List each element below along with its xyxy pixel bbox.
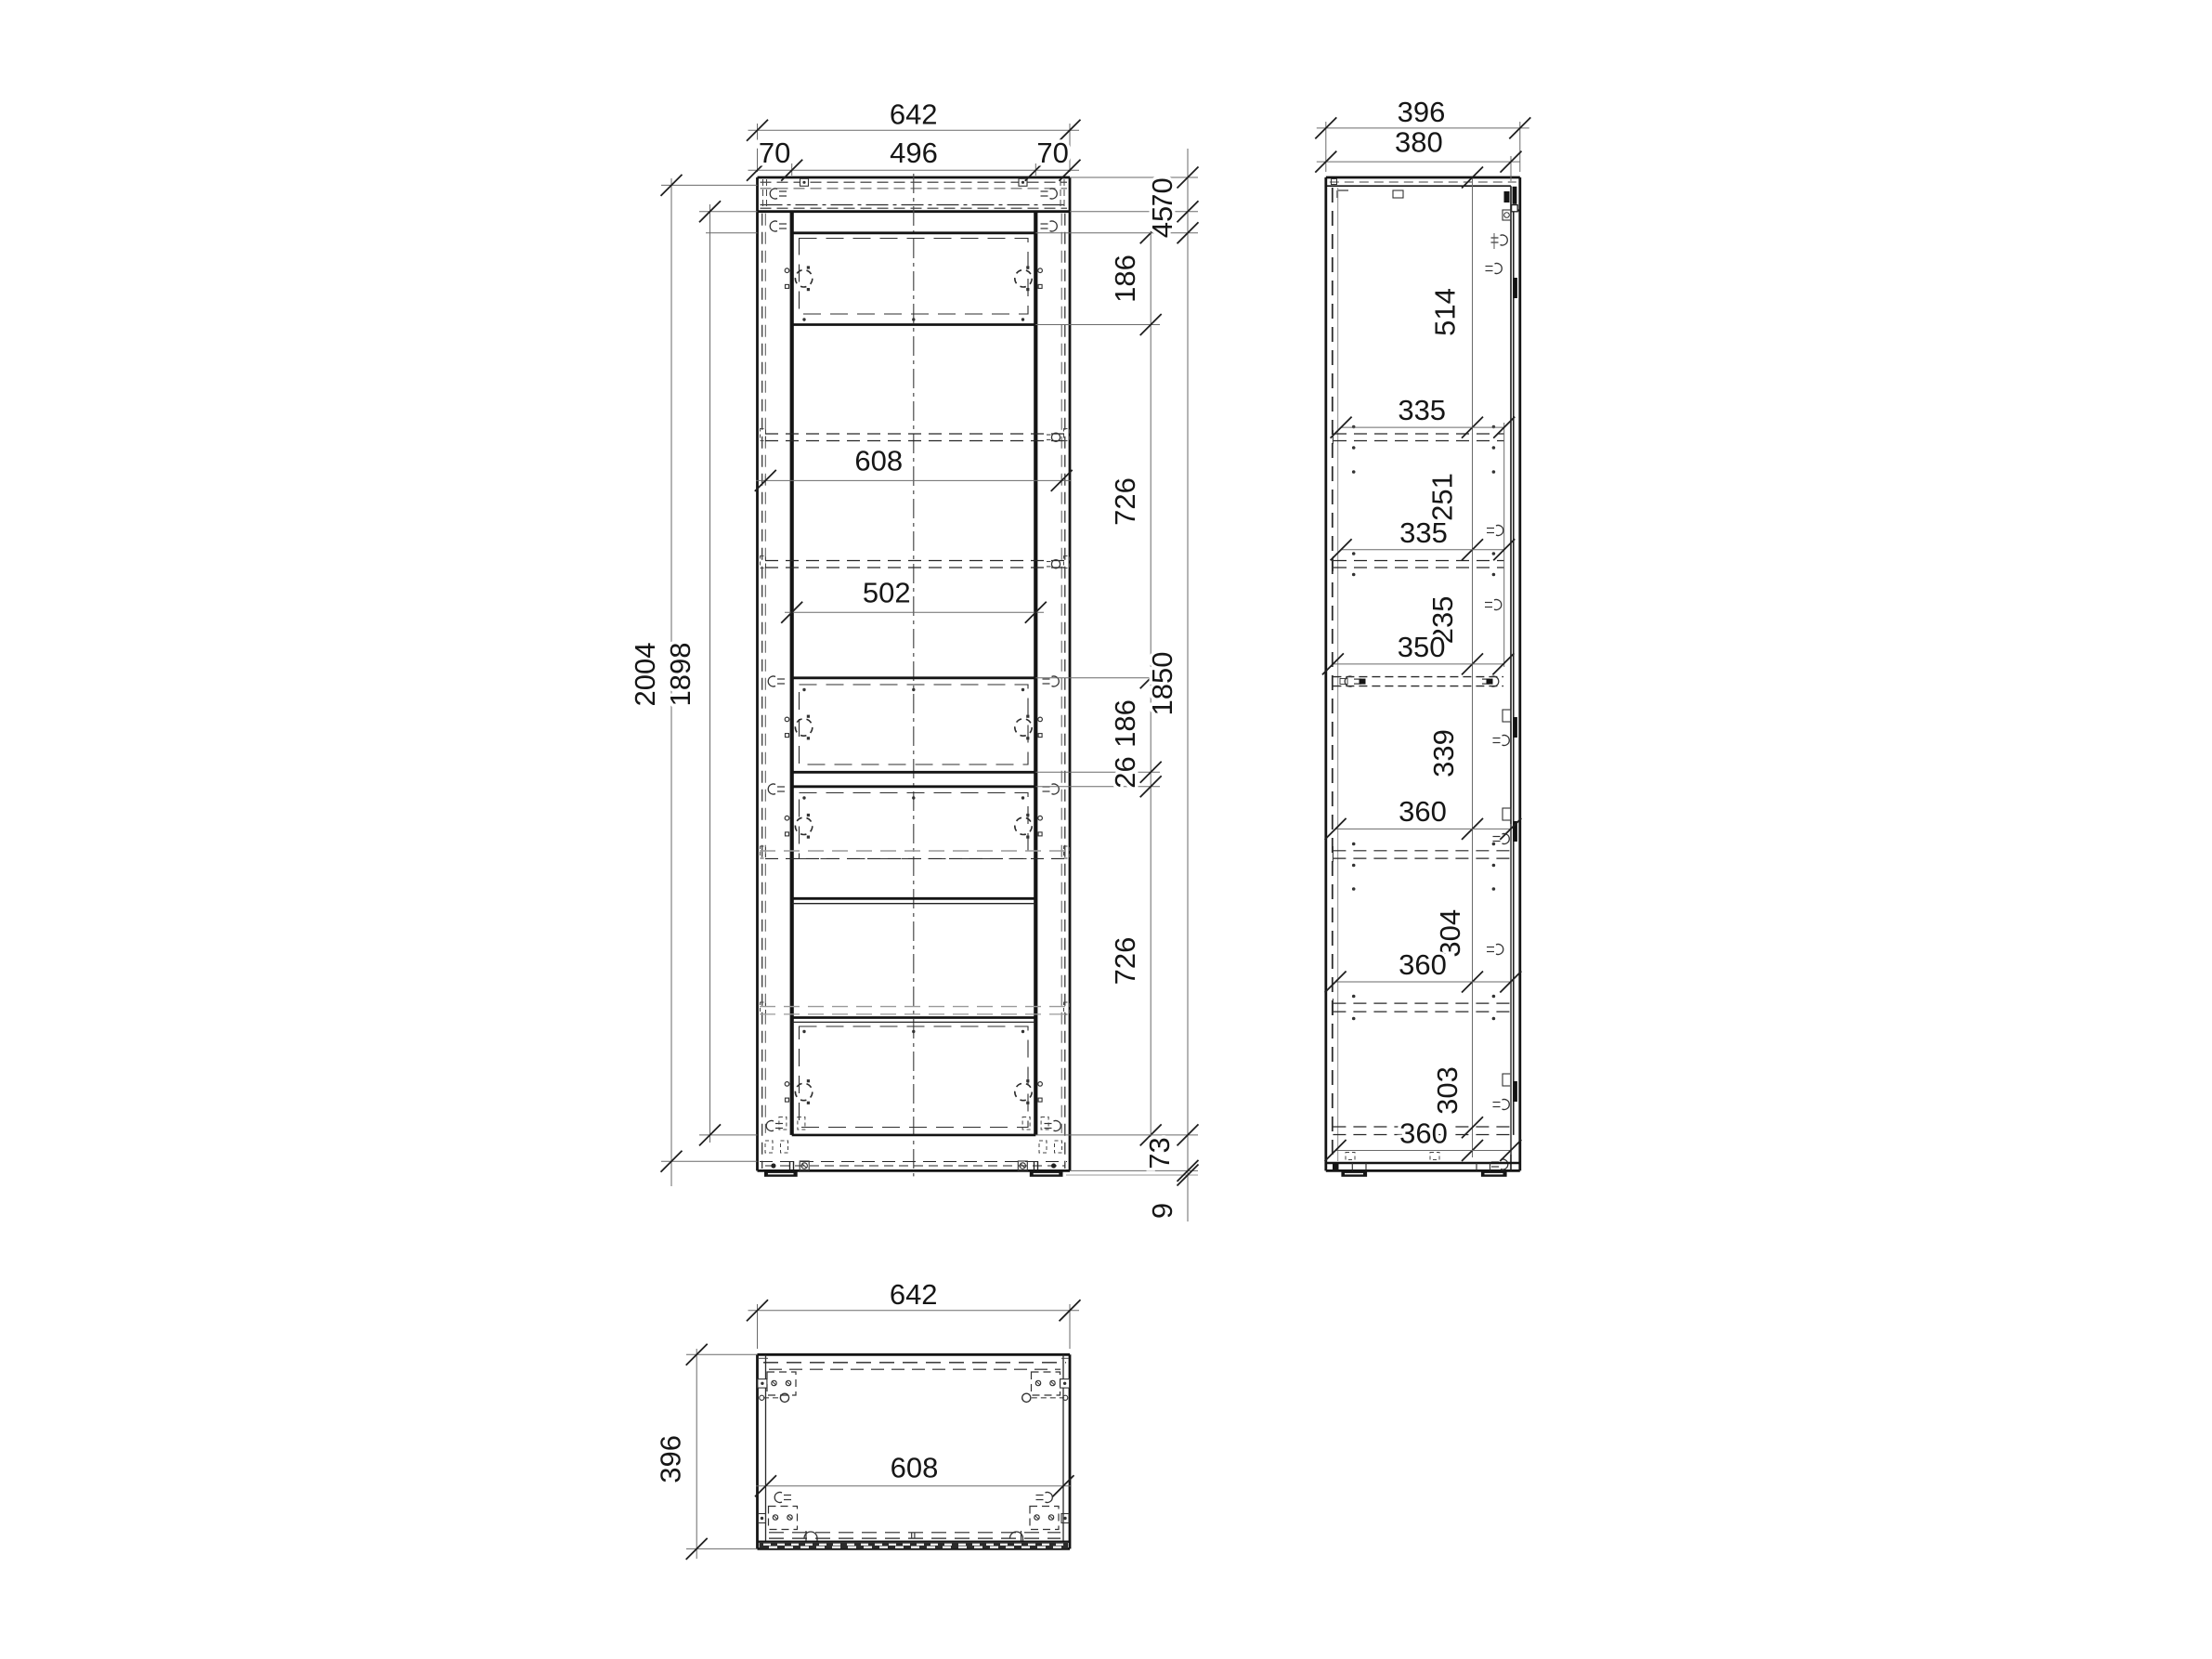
svg-text:73: 73	[1143, 1137, 1176, 1169]
svg-text:642: 642	[890, 1278, 938, 1311]
svg-text:642: 642	[890, 98, 938, 131]
svg-text:1850: 1850	[1146, 652, 1178, 716]
svg-text:350: 350	[1398, 631, 1446, 663]
svg-text:608: 608	[891, 1452, 939, 1484]
svg-text:26: 26	[1109, 756, 1141, 788]
svg-text:502: 502	[863, 577, 911, 609]
svg-text:396: 396	[1398, 96, 1446, 128]
svg-text:360: 360	[1399, 948, 1447, 981]
svg-text:9: 9	[1146, 1203, 1178, 1219]
svg-text:251: 251	[1425, 473, 1458, 521]
svg-text:335: 335	[1399, 516, 1448, 549]
svg-text:360: 360	[1399, 1117, 1448, 1150]
svg-text:70: 70	[759, 137, 790, 169]
svg-text:608: 608	[854, 445, 903, 477]
svg-text:514: 514	[1429, 288, 1462, 336]
svg-text:186: 186	[1109, 699, 1141, 748]
svg-text:2004: 2004	[629, 643, 661, 707]
svg-text:70: 70	[1036, 137, 1068, 169]
svg-text:1898: 1898	[664, 643, 696, 707]
svg-text:186: 186	[1109, 255, 1141, 303]
svg-text:45: 45	[1146, 206, 1178, 238]
svg-text:360: 360	[1399, 795, 1447, 828]
svg-text:726: 726	[1109, 477, 1141, 526]
svg-text:496: 496	[890, 137, 938, 169]
svg-text:339: 339	[1427, 729, 1460, 777]
svg-text:396: 396	[655, 1435, 687, 1483]
svg-text:726: 726	[1109, 937, 1141, 986]
svg-text:303: 303	[1431, 1066, 1464, 1115]
svg-text:70: 70	[1146, 177, 1178, 209]
svg-text:335: 335	[1398, 394, 1446, 426]
svg-text:380: 380	[1395, 126, 1443, 159]
